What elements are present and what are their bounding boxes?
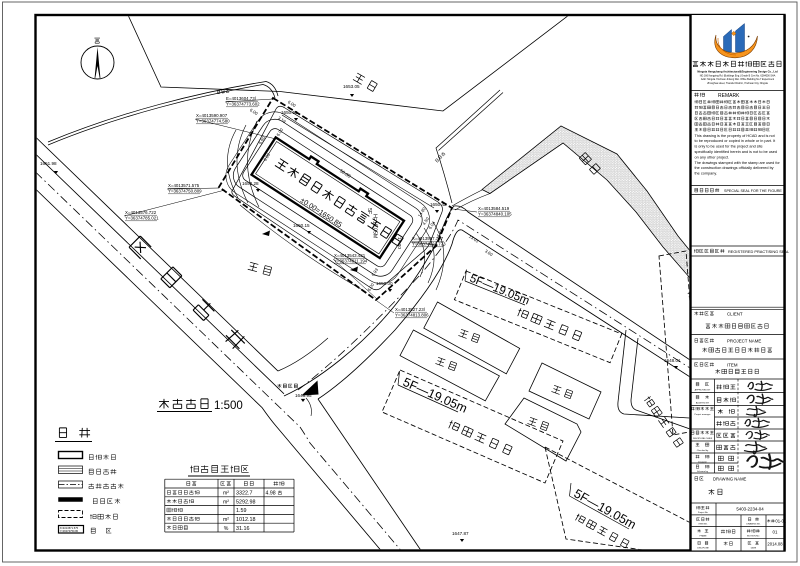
svg-text:specifically identified herein: specifically identified herein and is no… <box>695 150 778 154</box>
svg-text:m²: m² <box>223 499 229 505</box>
svg-text:1650.52: 1650.52 <box>281 110 298 115</box>
svg-text:DRAWING NAME: DRAWING NAME <box>713 477 747 482</box>
svg-text:DRAWING NO.: DRAWING NO. <box>746 523 761 526</box>
svg-text:Ningxia Hengchang Architectura: Ningxia Hengchang Architectural&Engineer… <box>697 69 778 73</box>
svg-text:the company.: the company. <box>695 172 718 176</box>
svg-text:SPECIAL SEAL FOR THE FIGURE: SPECIAL SEAL FOR THE FIGURE <box>724 189 782 193</box>
svg-text:5F: 5F <box>366 208 372 214</box>
svg-text:PHASE: PHASE <box>699 534 707 537</box>
svg-text:1648.95: 1648.95 <box>295 393 312 398</box>
svg-text:1653.05: 1653.05 <box>343 84 360 89</box>
svg-text:Y=36374774.580: Y=36374774.580 <box>196 119 230 124</box>
svg-text:PROJECT NAME: PROJECT NAME <box>727 339 761 344</box>
svg-text:3322.7: 3322.7 <box>236 491 253 497</box>
svg-text:01-01: 01-01 <box>775 519 786 524</box>
svg-text:X=4013527.23l: X=4013527.23l <box>395 307 425 312</box>
svg-text:%: % <box>224 526 229 532</box>
svg-text:Designer: Designer <box>698 461 707 464</box>
svg-text:31.16: 31.16 <box>236 526 250 532</box>
svg-text:Zhonghua street, Transfer Dist: Zhonghua street, Transfer District, Yinc… <box>707 82 768 85</box>
svg-text:The drawings stamped with the: The drawings stamped with the stamp are … <box>695 161 781 165</box>
svg-text:APPROVED BY: APPROVED BY <box>695 389 711 392</box>
svg-text:Y=36374750.809: Y=36374750.809 <box>168 189 202 194</box>
svg-text:X=4013543.421: X=4013543.421 <box>334 253 366 258</box>
svg-text:01: 01 <box>773 530 778 535</box>
svg-text:4.98: 4.98 <box>266 491 276 497</box>
svg-text:ITEM: ITEM <box>727 363 738 368</box>
svg-text:1647.87: 1647.87 <box>452 531 469 536</box>
svg-text:5292.98: 5292.98 <box>236 499 256 505</box>
svg-text:H=19.05M: H=19.05M <box>372 214 378 238</box>
svg-text:1648.01: 1648.01 <box>664 358 681 363</box>
svg-text:1012.18: 1012.18 <box>236 517 256 523</box>
svg-text:X=4013557.707: X=4013557.707 <box>412 236 444 241</box>
svg-text:NO.166 Kangping Rd. (Buildings: NO.166 Kangping Rd. (Buildings Eng.) Gra… <box>700 75 776 78</box>
svg-text:1650.28: 1650.28 <box>242 181 259 186</box>
svg-text:1.59: 1.59 <box>236 508 247 514</box>
svg-text:Y=36374750.80: Y=36374750.80 <box>60 529 79 533</box>
svg-text:1650.42: 1650.42 <box>430 202 447 207</box>
svg-text:1650.15: 1650.15 <box>293 223 310 228</box>
svg-text:DISCIPLINE: DISCIPLINE <box>697 547 709 549</box>
svg-text:is only to be used for the pro: is only to be used for the project and s… <box>695 145 763 149</box>
svg-text:CLIENT: CLIENT <box>727 312 743 317</box>
svg-text:Checked by: Checked by <box>697 450 709 452</box>
svg-text:m²: m² <box>223 517 229 523</box>
svg-text:5403-2234-04: 5403-2234-04 <box>736 507 764 512</box>
svg-text:Project manager: Project manager <box>694 413 710 416</box>
svg-text:Project No.: Project No. <box>698 511 709 514</box>
svg-text:EDITION NO.: EDITION NO. <box>747 535 760 537</box>
svg-text:17.20: 17.20 <box>396 237 402 249</box>
svg-text:1650.00: 1650.00 <box>376 281 393 286</box>
svg-text:1651.98: 1651.98 <box>40 161 57 166</box>
svg-text:2014.08: 2014.08 <box>767 542 783 547</box>
svg-text:X=4013590.907: X=4013590.907 <box>196 113 228 118</box>
svg-text:REGISTERED PRACTISING SEAL: REGISTERED PRACTISING SEAL <box>728 249 790 254</box>
svg-text:on any other project.: on any other project. <box>695 155 730 159</box>
svg-text:ITEM NO.: ITEM NO. <box>698 524 708 526</box>
svg-text:DATE: DATE <box>751 546 757 549</box>
svg-text:Y=36374773.602: Y=36374773.602 <box>226 102 260 107</box>
svg-text:This drawing is the property o: This drawing is the property of HCAD and… <box>695 134 776 138</box>
svg-text:X=4013571.575: X=4013571.575 <box>168 183 200 188</box>
svg-text:Y=36374811.194: Y=36374811.194 <box>334 259 368 264</box>
svg-text:m²: m² <box>223 491 229 497</box>
svg-text:Addr: Ningxia Yinchuan Jinfeng: Addr: Ningxia Yinchuan Jinfeng Dist. Off… <box>701 78 775 81</box>
svg-text:X=4013584.519: X=4013584.519 <box>478 206 510 211</box>
svg-text:Y=36374813.806: Y=36374813.806 <box>395 313 429 318</box>
svg-text:REMARK: REMARK <box>718 93 740 99</box>
svg-text:to be reproduced or copied in: to be reproduced or copied in whole or i… <box>695 139 777 143</box>
svg-text:DISCIPLINE CHIEF: DISCIPLINE CHIEF <box>693 438 713 440</box>
svg-text:the construction drawings offi: the construction drawings officially del… <box>695 166 774 170</box>
svg-text:AUDITED BY: AUDITED BY <box>696 402 710 405</box>
svg-text:X=4013576.722: X=4013576.722 <box>125 210 157 215</box>
svg-text:1:500: 1:500 <box>214 400 243 412</box>
svg-text:Y=36374785.021: Y=36374785.021 <box>125 216 159 221</box>
svg-text:Y=36374840.105: Y=36374840.105 <box>478 212 512 217</box>
